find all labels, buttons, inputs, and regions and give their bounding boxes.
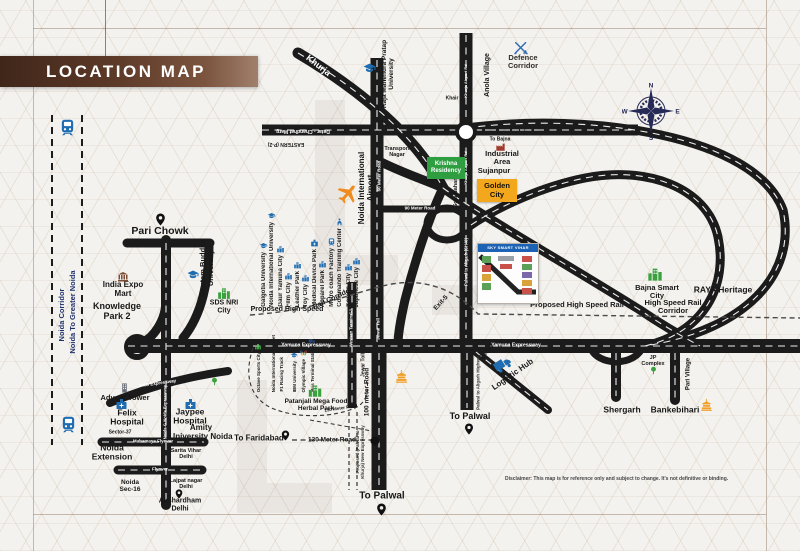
university-icon [186,269,200,281]
person-icon [335,218,344,226]
pin-icon [174,488,184,500]
expo-mart-icon [116,271,130,283]
city-buildings-icon [352,257,361,265]
site-plan-title: SKY SMART VIHAR [478,244,538,252]
sarita-vihar-label: Sarita Vihar Delhi [171,448,201,460]
roundabout [457,123,475,141]
tree-icon [649,366,658,375]
compass-rose-icon: N S E W [622,82,680,140]
to-faridabad-label: To Faridabad [234,435,284,444]
western-terminal-label: Western Terminal-1 [350,309,355,347]
palwal-aligarh-highway-label: Palwal to Aligarh Highway [477,354,482,410]
factory-icon [494,142,507,152]
cluster-item-f1: F1 Racing Track [279,357,284,392]
transport-nagar-label: Transport Nagar [384,146,409,158]
defence-corridor-label: Defence Corridor [508,54,538,71]
compass-e: E [675,109,680,116]
flyover-label: Flyover [152,468,168,473]
noida-corridor-label: Noida Corridor [58,289,66,342]
palwal-aligarh-sh40-label: Palwal to Aligarh (SH40) [465,238,470,286]
tower-icon [119,381,130,395]
city-buildings-icon [293,261,302,269]
proposed-hsr-label: Proposed High Speed Rail [530,301,624,309]
proposed-palwal-khurja-label: Proposed (Palwal to Khurja) New Expressw… [356,425,366,479]
university-icon [290,352,298,359]
compass-s: S [649,135,654,140]
cluster-item-ibm: IBM University [290,352,298,392]
raja-mahendra-label: Raja Mahendra Pratap University [381,40,395,108]
disclaimer-text: Disclaimer: This map is for reference on… [505,477,728,483]
meter-130-road-label: 130 Meter Road [308,436,356,443]
olympic-rings-icon [299,349,308,357]
felix-hospital-label: Felix Hospital [110,409,144,428]
site-plan-graphic [478,252,536,301]
sujanpur-label: Sujanpur [478,167,511,175]
cluster-item-octave: Octave Sports City [254,343,262,392]
pin-icon [280,429,291,442]
city-buildings-icon [318,260,327,268]
university-icon [362,62,377,75]
meter-100-road-label: 100 meter Road [363,368,370,416]
sector-37-label: Sector-37 [109,430,132,436]
jewar-toll-label: Jewar Toll [377,318,382,340]
cluster-item-toy-city: Toy City [301,274,310,307]
tree-icon [210,377,219,386]
noida-extension-label: Noida Extension [92,444,133,463]
hospital-icon [115,398,128,410]
hsr-corridor-label: High Speed Rail Corridor [644,299,701,316]
pin-icon [375,502,388,517]
meter-90-road-label: 90 Meter Road [405,207,436,212]
eastern-p2-label: EASTERN (P-2) [268,140,304,146]
location-map: LOCATION MAP N S E W Noida Corridor Noid… [0,0,800,551]
defence-swords-icon [512,40,530,56]
noida-greater-noida-label: Noida To Greater Noida [69,270,77,353]
pari-village-label: Pari Village [686,358,693,390]
bankebihari-label: Bankebihari [651,405,700,414]
city-buildings-icon [301,274,310,282]
sds-nri-city-label: SDS NRI City [210,299,238,314]
compass-n: N [649,83,654,90]
amity-university-label: Amity University Noida [169,424,232,442]
metro-corridor-dashes [52,115,82,445]
gautam-buddha-label: Gautam Buddha University [199,239,216,297]
pari-chowk-label: Pari Chowk [131,226,188,238]
city-buildings-icon [276,245,285,253]
mahamaya-flyover-label: Mahamaya Flyover [133,440,173,445]
city-buildings-icon [284,272,293,280]
khurja-airport-rd-label: Khurja Airport Rd [464,64,468,97]
pin-icon [154,212,167,227]
golden-city-box: Golden City [477,179,517,202]
to-palwal-label: To Palwal [450,412,491,422]
industrial-area-label: Industrial Area [485,150,519,167]
university-icon [267,212,276,220]
bus-icon [308,338,316,345]
metro-icon [59,119,76,136]
hospital-icon [184,398,197,410]
site-plan-inset: SKY SMART VIHAR [477,243,539,304]
city-buildings-icon [254,343,262,350]
sola-nahar-label: Sola Nahar [453,179,459,208]
compass-w: W [622,109,628,116]
bajna-smart-city-label: Bajna Smart City [635,284,679,301]
cluster-item-niu: Noida International University [267,212,276,307]
pin-icon [463,422,475,436]
city-buildings-icon [306,383,324,398]
raya-heritage-label: RAYA Heritage [694,285,753,294]
temple-icon [394,368,409,385]
datar-chandhat-marg-label: Datar - Chandhat Marg [276,127,330,133]
page-title: LOCATION MAP [46,62,206,82]
anola-village-label: Anola Village [484,53,492,97]
knowledge-park-label: Knowledge Park 2 [93,302,141,322]
khair-label: Khair [446,96,459,102]
noida-sec16-label: Noida Sec-16 [120,479,141,493]
shergarh-label: Shergarh [603,405,640,414]
noida-gnoida-expressway-label: Noida-G Noida Expressway [164,385,169,439]
patanjali-label: Patanjali Mega Food Herbal Park [285,398,348,412]
hospital-icon [310,239,319,247]
to-palwal-label: To Palwal [359,491,404,502]
krishna-residency-box: Krishna Residency [427,157,465,179]
cluster-item-film-city: Film City [284,272,293,307]
title-banner: LOCATION MAP [0,56,258,87]
india-expo-mart-label: India Expo Mart [103,281,143,299]
meter-60-road-label: 60 Meter Road [378,161,383,192]
yamuna-expressway-label: Yamuna Expressway [491,343,540,349]
city-buildings-icon [216,286,232,300]
metro-icon [60,416,77,433]
noida-airport-label: Noida International Airport [358,152,376,224]
cluster-item-cricket: Noida International Cricket [271,335,276,392]
city-buildings-icon [646,266,664,282]
temple-icon [699,398,714,412]
cluster-item-japanese-city: Japanese City [352,257,361,307]
